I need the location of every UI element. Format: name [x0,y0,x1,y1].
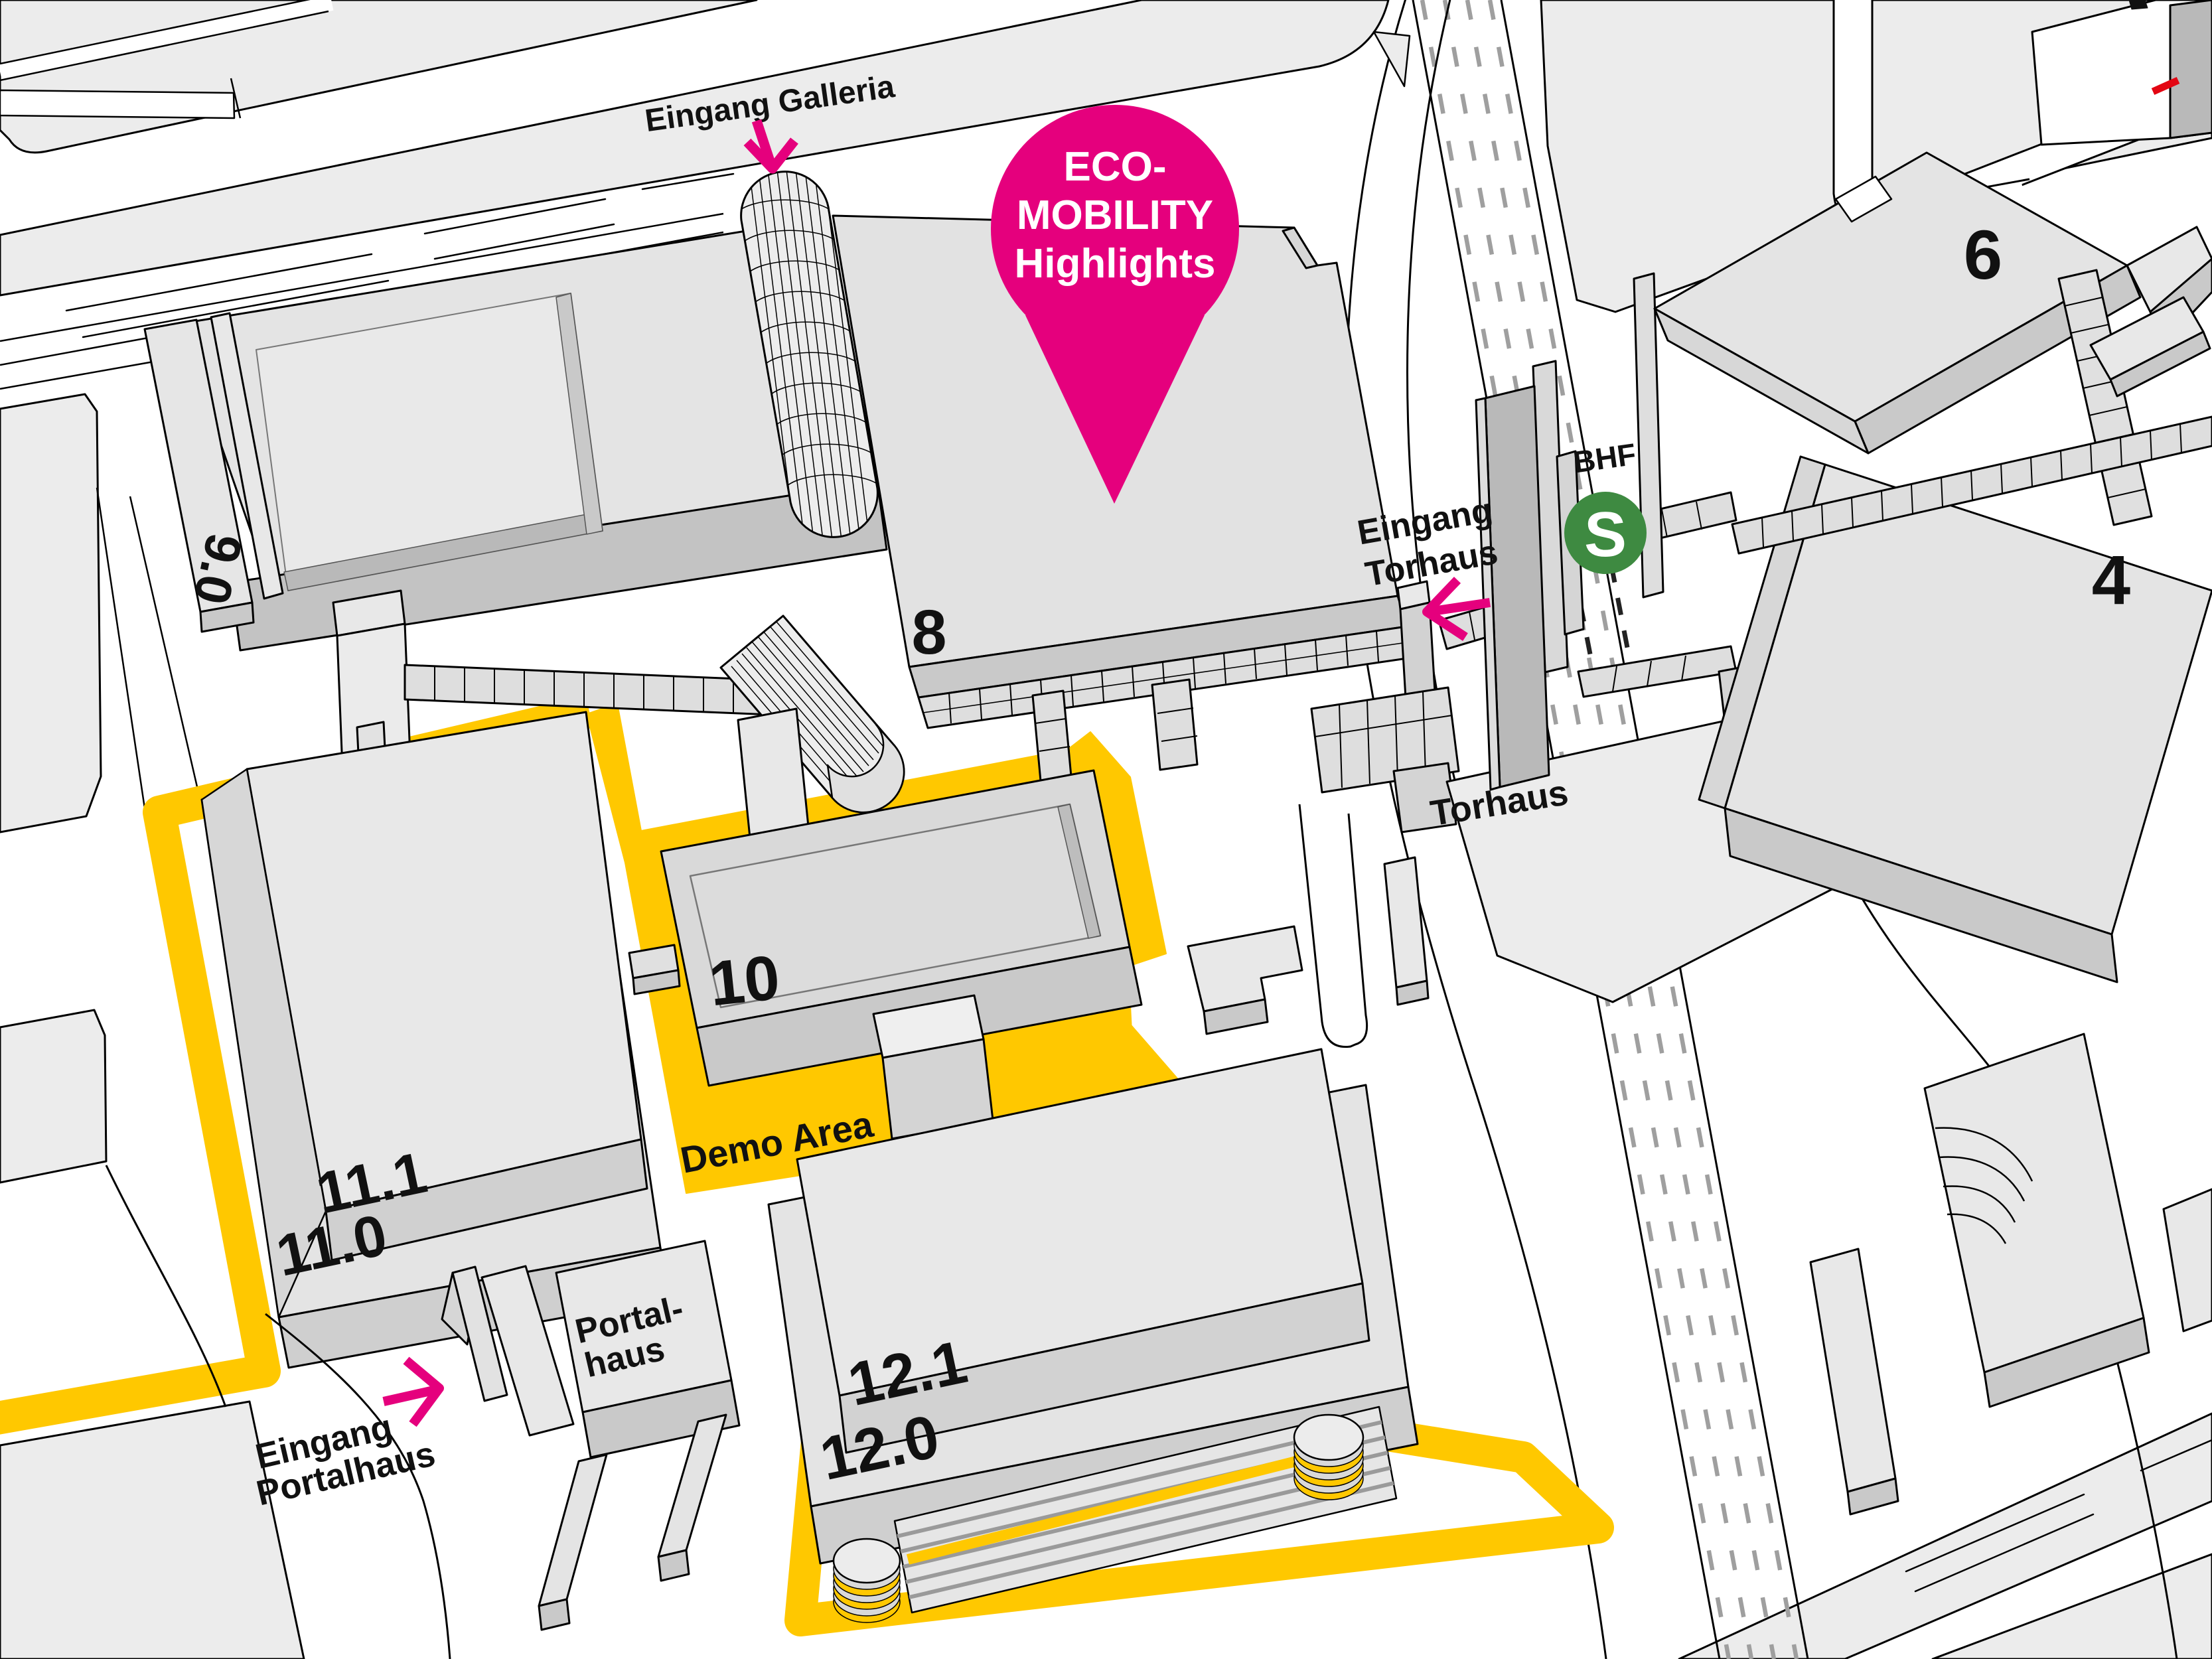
svg-text:S: S [1584,499,1627,570]
svg-text:4: 4 [2092,541,2130,619]
svg-text:6: 6 [1964,216,2002,294]
svg-text:10: 10 [706,942,783,1019]
svg-text:ECO-: ECO- [1064,144,1167,190]
svg-text:Highlights: Highlights [1014,241,1215,287]
svg-text:8: 8 [912,597,947,668]
svg-text:MOBILITY: MOBILITY [1017,192,1213,238]
